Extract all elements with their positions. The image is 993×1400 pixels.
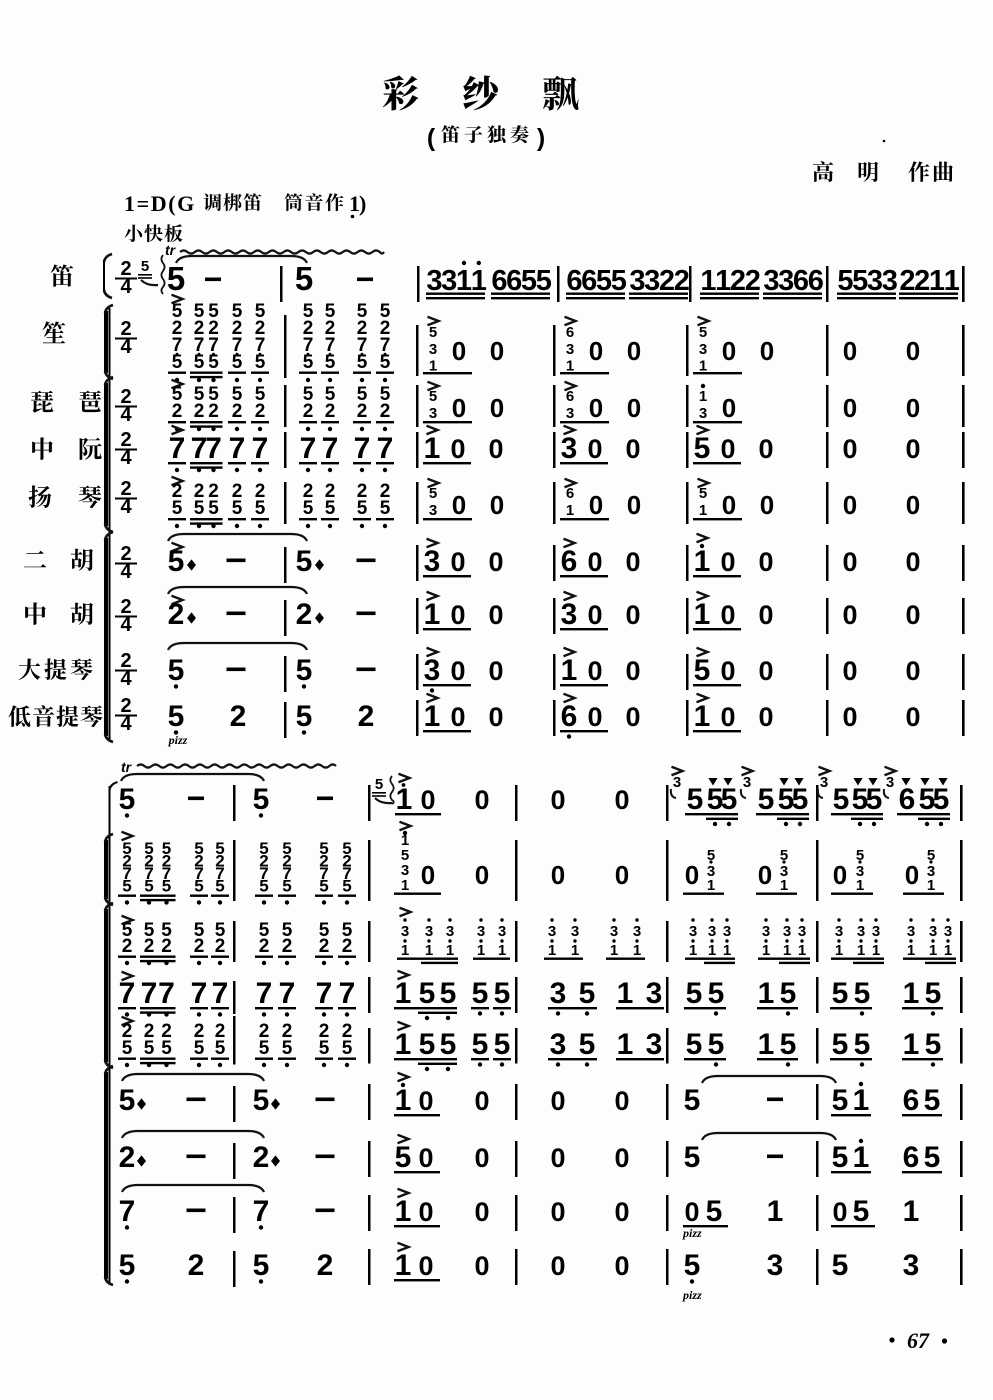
svg-text:4: 4 (120, 276, 132, 298)
svg-text:2: 2 (208, 401, 219, 422)
svg-text:1: 1 (471, 265, 487, 297)
svg-text:3: 3 (633, 923, 641, 940)
svg-text:0: 0 (684, 1197, 699, 1227)
svg-text:0: 0 (906, 336, 920, 366)
svg-text:0: 0 (614, 1086, 629, 1116)
svg-text:6: 6 (506, 265, 522, 297)
svg-text:2: 2 (194, 401, 205, 422)
svg-text:6: 6 (903, 1084, 920, 1117)
svg-text:5: 5 (259, 1038, 270, 1059)
svg-text:1: 1 (929, 942, 937, 959)
svg-text:1: 1 (498, 942, 506, 959)
svg-text:2: 2 (357, 401, 368, 422)
svg-text:1: 1 (548, 942, 556, 959)
svg-text:1: 1 (395, 1084, 412, 1117)
svg-text:0: 0 (474, 1251, 489, 1281)
svg-text:2: 2 (122, 936, 133, 957)
svg-text:2: 2 (144, 936, 155, 957)
svg-text:5: 5 (380, 498, 391, 519)
svg-text:0: 0 (589, 490, 603, 520)
svg-text:1: 1 (566, 358, 574, 375)
svg-text:7: 7 (191, 977, 208, 1010)
svg-text:4: 4 (120, 336, 132, 358)
svg-text:0: 0 (420, 785, 435, 815)
svg-text:67: 67 (907, 1328, 930, 1353)
svg-text:1: 1 (723, 942, 731, 959)
svg-text:0: 0 (627, 490, 641, 520)
svg-text:0: 0 (589, 393, 603, 423)
svg-text:1: 1 (700, 265, 716, 297)
svg-text:3: 3 (929, 923, 937, 940)
svg-text:6: 6 (903, 1141, 920, 1174)
svg-text:0: 0 (720, 702, 735, 732)
svg-text:7: 7 (354, 432, 371, 465)
svg-text:6: 6 (566, 265, 582, 297)
svg-text:0: 0 (758, 434, 773, 464)
svg-text:5: 5 (472, 977, 489, 1010)
svg-text:5: 5 (832, 1084, 849, 1117)
svg-text:0: 0 (758, 656, 773, 686)
svg-text:5: 5 (395, 1141, 412, 1174)
svg-text:5: 5 (119, 1084, 136, 1117)
svg-text:5: 5 (780, 1028, 797, 1061)
svg-text:1: 1 (903, 1195, 920, 1228)
svg-text:3: 3 (401, 923, 409, 940)
svg-text:0: 0 (450, 547, 465, 577)
svg-text:3: 3 (867, 265, 883, 297)
svg-text:5: 5 (706, 1195, 723, 1228)
svg-text:5: 5 (215, 877, 224, 896)
svg-text:1: 1 (929, 265, 945, 297)
svg-text:7: 7 (141, 977, 158, 1010)
svg-text:7: 7 (158, 977, 175, 1010)
svg-text:5: 5 (924, 1141, 941, 1174)
svg-text:0: 0 (488, 434, 503, 464)
svg-text:5: 5 (232, 498, 243, 519)
svg-text:1: 1 (699, 358, 707, 375)
svg-text:1: 1 (798, 942, 806, 959)
svg-text:0: 0 (832, 1197, 847, 1227)
svg-text:3: 3 (872, 923, 880, 940)
svg-text:5: 5 (167, 260, 185, 297)
svg-text:1: 1 (694, 598, 711, 631)
svg-text:5: 5 (708, 1028, 725, 1061)
svg-text:3: 3 (903, 1249, 920, 1282)
svg-text:0: 0 (720, 547, 735, 577)
svg-text:5: 5 (419, 1028, 436, 1061)
svg-text:tr: tr (121, 759, 133, 775)
svg-text:0: 0 (720, 656, 735, 686)
svg-text:6: 6 (793, 265, 809, 297)
svg-text:5: 5 (319, 1038, 330, 1059)
svg-text:1: 1 (694, 545, 711, 578)
svg-text:0: 0 (843, 336, 857, 366)
svg-text:0: 0 (490, 393, 504, 423)
svg-text:5: 5 (925, 977, 942, 1010)
svg-text:3: 3 (429, 502, 437, 519)
svg-text:1: 1 (907, 942, 915, 959)
svg-text:5: 5 (853, 1195, 870, 1228)
svg-text:7: 7 (212, 977, 229, 1010)
svg-text:4: 4 (120, 713, 132, 735)
svg-text:3: 3 (699, 405, 707, 422)
svg-text:5: 5 (832, 1028, 849, 1061)
svg-text:0: 0 (905, 547, 920, 577)
svg-text:3: 3 (561, 598, 578, 631)
svg-text:5: 5 (579, 1028, 596, 1061)
svg-text:2: 2 (914, 265, 930, 297)
svg-text:3: 3 (550, 977, 567, 1010)
svg-text:0: 0 (614, 785, 629, 815)
svg-text:0: 0 (625, 434, 640, 464)
svg-text:5: 5 (122, 1038, 133, 1059)
svg-text:3: 3 (673, 774, 681, 791)
svg-text:1: 1 (425, 942, 433, 959)
svg-text:5: 5 (319, 877, 328, 896)
svg-text:2: 2 (230, 700, 247, 733)
svg-text:1: 1 (903, 977, 920, 1010)
svg-text:1: 1 (762, 942, 770, 959)
svg-text:3: 3 (498, 923, 506, 940)
svg-text:0: 0 (614, 1197, 629, 1227)
svg-text:2: 2 (215, 936, 226, 957)
svg-text:0: 0 (843, 490, 857, 520)
svg-text:1: 1 (395, 1028, 412, 1061)
svg-text:0: 0 (906, 490, 920, 520)
svg-text:0: 0 (587, 656, 602, 686)
svg-text:3: 3 (429, 405, 437, 422)
svg-text:5: 5 (684, 1249, 701, 1282)
svg-text:0: 0 (625, 547, 640, 577)
svg-text:5: 5 (494, 977, 511, 1010)
svg-text:3: 3 (723, 923, 731, 940)
svg-text:2: 2 (188, 1249, 205, 1282)
svg-text:5: 5 (440, 1028, 457, 1061)
svg-text:6: 6 (581, 265, 597, 297)
svg-text:1: 1 (853, 1084, 870, 1117)
svg-text:1: 1 (903, 1028, 920, 1061)
svg-text:5: 5 (253, 1084, 270, 1117)
svg-text:2: 2 (282, 936, 293, 957)
svg-text:5: 5 (832, 977, 849, 1010)
svg-text:5: 5 (536, 265, 552, 297)
svg-text:6: 6 (899, 783, 916, 816)
svg-text:1: 1 (927, 877, 935, 894)
svg-text:5: 5 (832, 1249, 849, 1282)
svg-text:7: 7 (322, 432, 339, 465)
svg-text:5: 5 (925, 1028, 942, 1061)
svg-text:5: 5 (194, 1038, 205, 1059)
svg-text:2: 2 (172, 401, 183, 422)
svg-text:5: 5 (172, 498, 183, 519)
svg-text:5: 5 (707, 847, 715, 864)
svg-text:5: 5 (687, 783, 704, 816)
svg-text:3: 3 (629, 265, 645, 297)
svg-text:5: 5 (296, 654, 313, 687)
svg-text:2: 2 (380, 401, 391, 422)
svg-text:0: 0 (758, 547, 773, 577)
svg-text:4: 4 (120, 404, 132, 426)
svg-text:0: 0 (905, 600, 920, 630)
svg-text:5: 5 (832, 1141, 849, 1174)
svg-text:5: 5 (144, 877, 153, 896)
svg-text:0: 0 (488, 600, 503, 630)
svg-text:0: 0 (758, 702, 773, 732)
svg-text:0: 0 (452, 336, 466, 366)
svg-text:2: 2 (296, 598, 313, 631)
svg-text:5: 5 (472, 1028, 489, 1061)
svg-text:0: 0 (758, 600, 773, 630)
svg-text:1: 1 (872, 942, 880, 959)
svg-text:5: 5 (168, 700, 185, 733)
svg-text:5: 5 (282, 877, 291, 896)
svg-text:7: 7 (279, 977, 296, 1010)
svg-text:0: 0 (550, 1086, 565, 1116)
svg-text:5: 5 (194, 498, 205, 519)
svg-text:7: 7 (252, 432, 269, 465)
svg-text:1: 1 (401, 877, 409, 894)
svg-text:): ) (537, 124, 545, 152)
svg-text:3: 3 (561, 432, 578, 465)
svg-text:1: 1 (429, 358, 437, 375)
svg-text:0: 0 (905, 860, 919, 890)
svg-text:1: 1 (780, 877, 788, 894)
svg-text:7: 7 (253, 1195, 270, 1228)
svg-text:5: 5 (758, 783, 775, 816)
svg-text:2: 2 (253, 1141, 270, 1174)
svg-text:1: 1 (633, 942, 641, 959)
svg-text:2: 2 (194, 936, 205, 957)
svg-text:0: 0 (627, 336, 641, 366)
svg-text:5: 5 (168, 654, 185, 687)
svg-text:1: 1 (617, 1028, 634, 1061)
svg-text:6: 6 (566, 485, 574, 502)
svg-text:0: 0 (490, 490, 504, 520)
svg-text:6: 6 (561, 700, 578, 733)
svg-text:0: 0 (418, 1086, 433, 1116)
svg-text:1: 1 (783, 942, 791, 959)
svg-text:5: 5 (419, 977, 436, 1010)
svg-text:5: 5 (161, 1038, 172, 1059)
svg-text:3: 3 (763, 265, 779, 297)
svg-text:1: 1 (396, 783, 413, 816)
svg-text:0: 0 (587, 600, 602, 630)
svg-text:pizz: pizz (682, 1226, 702, 1240)
svg-text:5: 5 (259, 877, 268, 896)
svg-text:3: 3 (708, 923, 716, 940)
svg-text:7: 7 (316, 977, 333, 1010)
svg-text:7: 7 (205, 432, 222, 465)
svg-text:0: 0 (551, 860, 565, 890)
svg-text:1: 1 (617, 977, 634, 1010)
svg-text:3: 3 (425, 923, 433, 940)
svg-text:3: 3 (882, 265, 898, 297)
svg-text:5: 5 (141, 258, 149, 275)
svg-text:5: 5 (699, 324, 707, 341)
svg-text:5: 5 (721, 783, 738, 816)
svg-text:5: 5 (927, 847, 935, 864)
svg-text:3: 3 (446, 923, 454, 940)
svg-text:4: 4 (120, 447, 132, 469)
svg-text:3: 3 (477, 923, 485, 940)
svg-text:0: 0 (488, 547, 503, 577)
svg-text:5: 5 (686, 977, 703, 1010)
svg-text:0: 0 (450, 434, 465, 464)
svg-text:6: 6 (561, 545, 578, 578)
svg-text:3: 3 (424, 545, 441, 578)
svg-text:5: 5 (686, 1028, 703, 1061)
svg-text:7: 7 (256, 977, 273, 1010)
svg-text:3: 3 (907, 923, 915, 940)
svg-text:1: 1 (944, 942, 952, 959)
svg-text:0: 0 (625, 656, 640, 686)
svg-text:2: 2 (342, 936, 353, 957)
svg-text:5: 5 (255, 498, 266, 519)
svg-text:0: 0 (550, 785, 565, 815)
svg-text:5: 5 (684, 1141, 701, 1174)
svg-text:0: 0 (452, 490, 466, 520)
svg-text:0: 0 (906, 393, 920, 423)
svg-text:0: 0 (842, 702, 857, 732)
svg-text:2: 2 (319, 936, 330, 957)
svg-text:2: 2 (255, 401, 266, 422)
svg-text:0: 0 (490, 336, 504, 366)
svg-text:0: 0 (589, 336, 603, 366)
svg-text:1: 1 (835, 942, 843, 959)
svg-text:5: 5 (429, 485, 437, 502)
svg-text:5: 5 (833, 783, 850, 816)
svg-text:5: 5 (215, 1038, 226, 1059)
svg-text:4: 4 (120, 668, 132, 690)
svg-text:5: 5 (684, 1084, 701, 1117)
svg-text:6: 6 (566, 388, 574, 405)
svg-text:3: 3 (743, 774, 751, 791)
svg-text:5: 5 (579, 977, 596, 1010)
svg-text:5: 5 (429, 388, 437, 405)
svg-text:1: 1 (767, 1195, 784, 1228)
svg-text:5: 5 (854, 977, 871, 1010)
svg-text:1: 1 (395, 1195, 412, 1228)
svg-text:1: 1 (424, 432, 441, 465)
svg-text:4: 4 (120, 496, 132, 518)
svg-text:1: 1 (424, 598, 441, 631)
svg-text:0: 0 (905, 434, 920, 464)
svg-text:5: 5 (119, 783, 136, 816)
svg-text:1: 1 (699, 388, 707, 405)
svg-text:5: 5 (208, 498, 219, 519)
svg-text:2: 2 (358, 700, 375, 733)
svg-text:0: 0 (452, 393, 466, 423)
svg-text:5: 5 (342, 877, 351, 896)
svg-text:2: 2 (168, 598, 185, 631)
svg-text:0: 0 (842, 656, 857, 686)
svg-text:3: 3 (566, 341, 574, 358)
svg-text:2: 2 (232, 401, 243, 422)
svg-text:2: 2 (899, 265, 915, 297)
svg-text:0: 0 (627, 393, 641, 423)
svg-text:0: 0 (720, 600, 735, 630)
svg-text:5: 5 (325, 498, 336, 519)
svg-text:5: 5 (837, 265, 853, 297)
svg-text:1: 1 (758, 977, 775, 1010)
svg-text:0: 0 (474, 785, 489, 815)
svg-text:5: 5 (852, 265, 868, 297)
svg-text:0: 0 (905, 656, 920, 686)
svg-text:1: 1 (944, 265, 960, 297)
svg-text:1: 1 (610, 942, 618, 959)
svg-text:0: 0 (550, 1251, 565, 1281)
svg-text:0: 0 (587, 702, 602, 732)
svg-text:0: 0 (450, 702, 465, 732)
svg-text:0: 0 (833, 860, 847, 890)
svg-text:0: 0 (685, 860, 699, 890)
svg-text:5: 5 (122, 877, 131, 896)
svg-text:2: 2 (161, 936, 172, 957)
svg-text:0: 0 (720, 434, 735, 464)
svg-text:5: 5 (253, 783, 270, 816)
svg-text:3: 3 (424, 654, 441, 687)
svg-text:3: 3 (610, 923, 618, 940)
svg-text:3: 3 (426, 265, 442, 297)
svg-text:0: 0 (587, 434, 602, 464)
svg-text:1: 1 (857, 942, 865, 959)
svg-text:0: 0 (450, 656, 465, 686)
svg-text:3: 3 (820, 774, 828, 791)
svg-text:3: 3 (646, 1028, 663, 1061)
svg-text:3: 3 (886, 774, 894, 791)
svg-text:0: 0 (722, 336, 736, 366)
svg-text:3: 3 (550, 1028, 567, 1061)
svg-text:0: 0 (905, 702, 920, 732)
svg-text:3: 3 (944, 923, 952, 940)
svg-text:5: 5 (253, 1249, 270, 1282)
svg-text:1: 1 (395, 977, 412, 1010)
svg-text:5: 5 (780, 977, 797, 1010)
svg-text:3: 3 (689, 923, 697, 940)
svg-text:7: 7 (300, 432, 317, 465)
svg-text:0: 0 (474, 1143, 489, 1173)
svg-text:1: 1 (707, 877, 715, 894)
svg-text:3: 3 (798, 923, 806, 940)
svg-text:7: 7 (229, 432, 246, 465)
svg-text:3: 3 (778, 265, 794, 297)
svg-text:3: 3 (646, 977, 663, 1010)
svg-text:0: 0 (842, 600, 857, 630)
svg-text:2: 2 (259, 936, 270, 957)
svg-text:7: 7 (119, 977, 136, 1010)
svg-text:0: 0 (488, 702, 503, 732)
svg-text:5: 5 (596, 265, 612, 297)
svg-text:0: 0 (587, 547, 602, 577)
svg-text:0: 0 (421, 860, 435, 890)
svg-text:5: 5 (282, 1038, 293, 1059)
svg-text:5: 5 (694, 654, 711, 687)
svg-text:5: 5 (144, 1038, 155, 1059)
svg-text:5: 5 (611, 265, 627, 297)
svg-text:5: 5 (854, 1028, 871, 1061)
svg-text:5: 5 (933, 783, 950, 816)
svg-text:3: 3 (762, 923, 770, 940)
svg-text:0: 0 (418, 1197, 433, 1227)
svg-text:1: 1 (566, 502, 574, 519)
svg-text:0: 0 (625, 600, 640, 630)
svg-text:5: 5 (694, 432, 711, 465)
svg-text:2: 2 (325, 401, 336, 422)
svg-text:0: 0 (418, 1143, 433, 1173)
svg-text:7: 7 (119, 1195, 136, 1228)
svg-text:5: 5 (699, 485, 707, 502)
svg-text:0: 0 (842, 434, 857, 464)
